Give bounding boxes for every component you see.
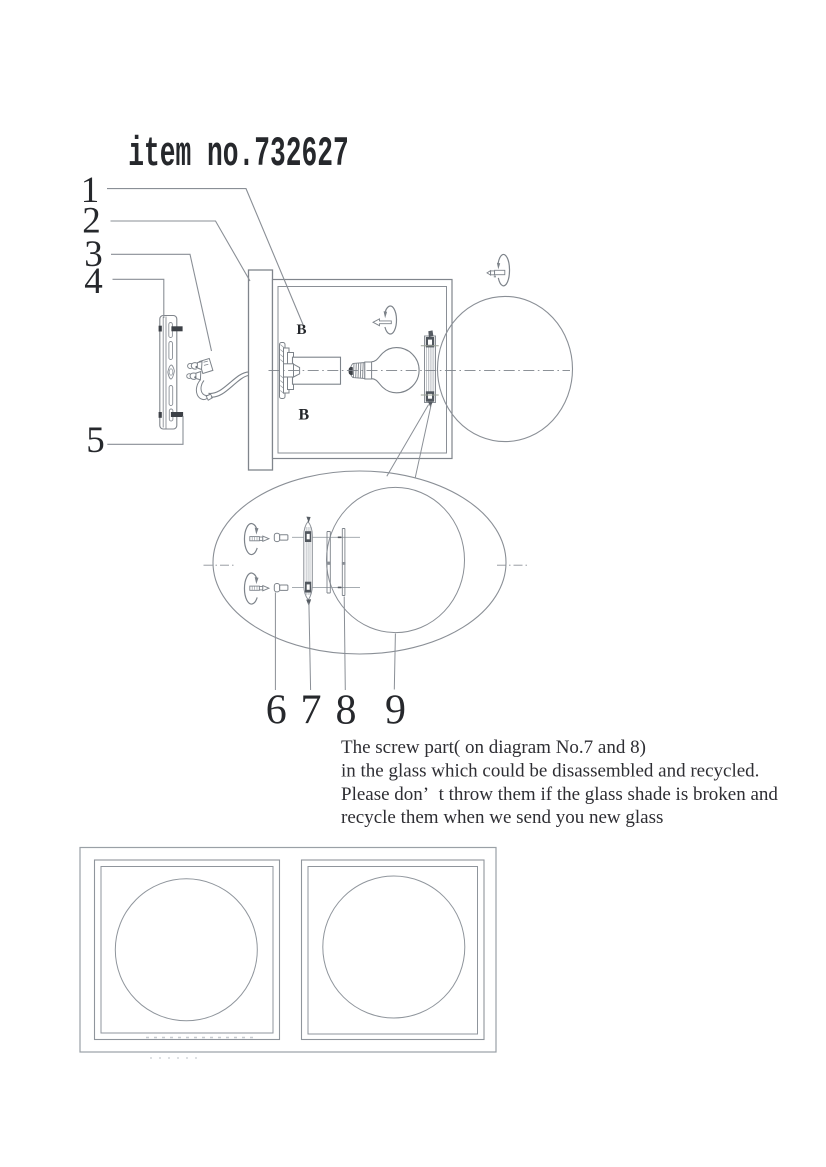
- svg-text:8: 8: [336, 688, 357, 734]
- svg-text:The screw part( on diagram No.: The screw part( on diagram No.7 and 8): [341, 737, 646, 758]
- svg-text:5: 5: [86, 420, 105, 461]
- svg-text:B: B: [299, 407, 310, 424]
- svg-text:B: B: [297, 322, 307, 338]
- svg-text:item no.732627: item no.732627: [128, 130, 349, 178]
- svg-text:6: 6: [266, 688, 287, 734]
- svg-text:recycle them when we send you: recycle them when we send you new glass: [341, 807, 663, 828]
- svg-text:in the glass which could be di: in the glass which could be disassembled…: [341, 760, 759, 781]
- svg-text:Please don’ t throw them if t: Please don’ t throw them if the glass sh…: [341, 784, 778, 805]
- svg-text:7: 7: [301, 688, 322, 734]
- svg-text:9: 9: [385, 688, 406, 734]
- svg-text:4: 4: [84, 261, 103, 302]
